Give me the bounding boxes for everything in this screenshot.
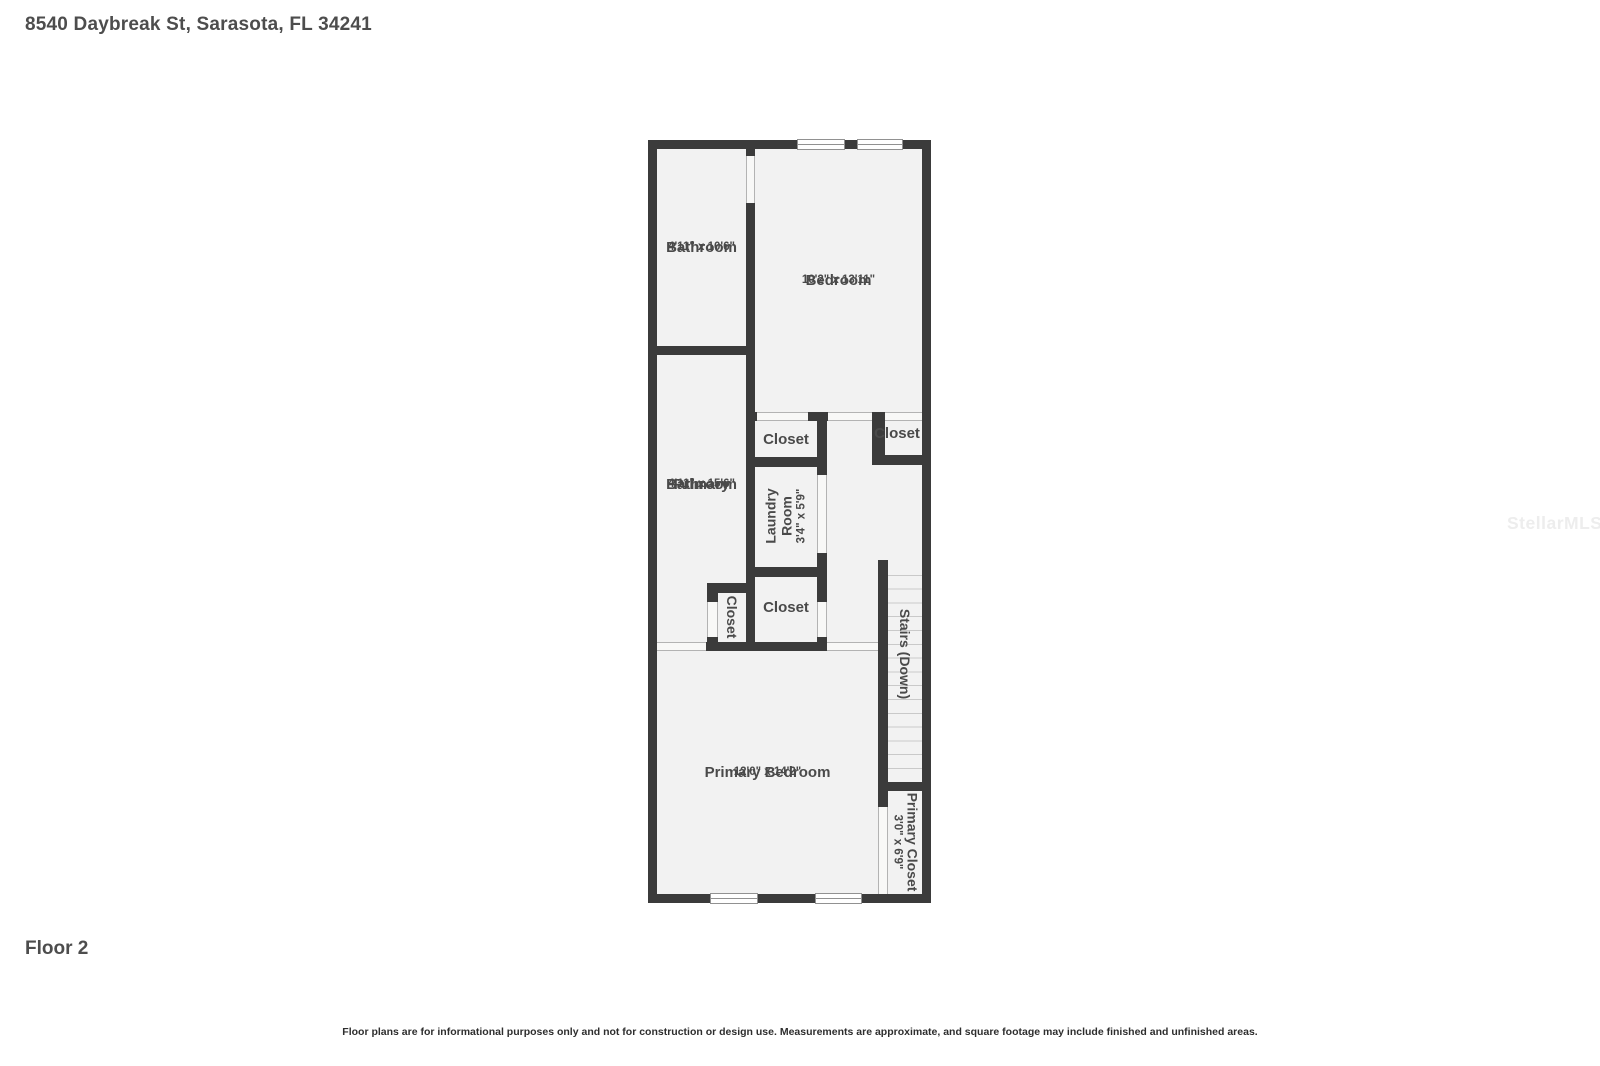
floor-label: Floor 2 <box>25 938 88 960</box>
door-opening <box>878 807 888 894</box>
room-label-bedroom: Bedroom 10'2" x 13'11" <box>755 149 922 412</box>
door-opening <box>657 642 706 651</box>
room-label-closet-side: Closet <box>724 596 740 639</box>
wall <box>817 637 827 651</box>
room-name: Closet <box>763 599 809 616</box>
room-label-closet-top-left: Closet <box>755 421 817 457</box>
room-name: Closet <box>724 596 740 639</box>
wall <box>878 782 922 791</box>
watermark: StellarMLS <box>1507 513 1600 534</box>
room-name: Room <box>779 488 795 543</box>
room-name: Bathroom <box>666 476 737 493</box>
wall <box>707 583 718 602</box>
door-opening <box>828 412 872 421</box>
room-dims: 12'0" x 14'2" <box>734 765 802 780</box>
room-dims: 3'4" x 5'9" <box>795 488 810 543</box>
wall <box>746 149 755 156</box>
room-dims: 10'2" x 13'11" <box>802 273 875 288</box>
door-opening <box>817 602 827 637</box>
room-name: Bedroom <box>806 272 872 289</box>
window <box>710 893 758 904</box>
room-name: Laundry <box>763 488 779 543</box>
door-opening <box>885 412 922 421</box>
wall <box>878 560 888 791</box>
door-opening <box>757 412 808 421</box>
wall <box>817 553 827 602</box>
wall <box>706 642 817 651</box>
door-opening <box>827 642 878 651</box>
room-name: Primary Closet <box>905 793 921 892</box>
room-label-primary-closet: Primary Closet 3'0" x 6'9" <box>890 793 921 892</box>
window <box>857 139 903 150</box>
room-name: Closet <box>763 431 809 448</box>
wall <box>746 567 827 577</box>
room-label-primary-bedroom: Primary Bedroom 12'0" x 14'2" <box>657 651 878 894</box>
disclaimer: Floor plans are for informational purpos… <box>0 1026 1600 1038</box>
room-label-closet-middle: Closet <box>755 577 817 637</box>
room-dims: 4'11" x 15'6" <box>668 477 735 492</box>
wall <box>746 457 827 467</box>
page-title: 8540 Daybreak St, Sarasota, FL 34241 <box>25 14 372 36</box>
window <box>815 893 862 904</box>
window <box>797 139 845 150</box>
wall <box>657 346 755 355</box>
room-label-laundry-room: Laundry Room 3'4" x 5'9" <box>763 488 810 543</box>
floor-plan: Bathroom 4'11" x 10'6" Bedroom 10'2" x 1… <box>648 140 931 903</box>
wall <box>872 455 922 465</box>
wall <box>746 412 757 421</box>
room-dims: 4'11" x 10'6" <box>668 240 735 255</box>
room-name: Primary Bedroom <box>705 764 831 781</box>
door-opening <box>817 475 827 553</box>
room-name: Primary <box>674 476 730 493</box>
wall <box>878 791 888 807</box>
door-opening <box>746 156 755 203</box>
stairs-treads <box>888 562 922 782</box>
room-label-primary-bathroom: Primary Bathroom 4'11" x 15'6" <box>657 355 746 613</box>
room-dims: 3'0" x 6'9" <box>890 793 905 892</box>
door-opening <box>707 602 718 637</box>
room-label-bathroom: Bathroom 4'11" x 10'6" <box>657 149 746 346</box>
room-name: Bathroom <box>666 239 737 256</box>
